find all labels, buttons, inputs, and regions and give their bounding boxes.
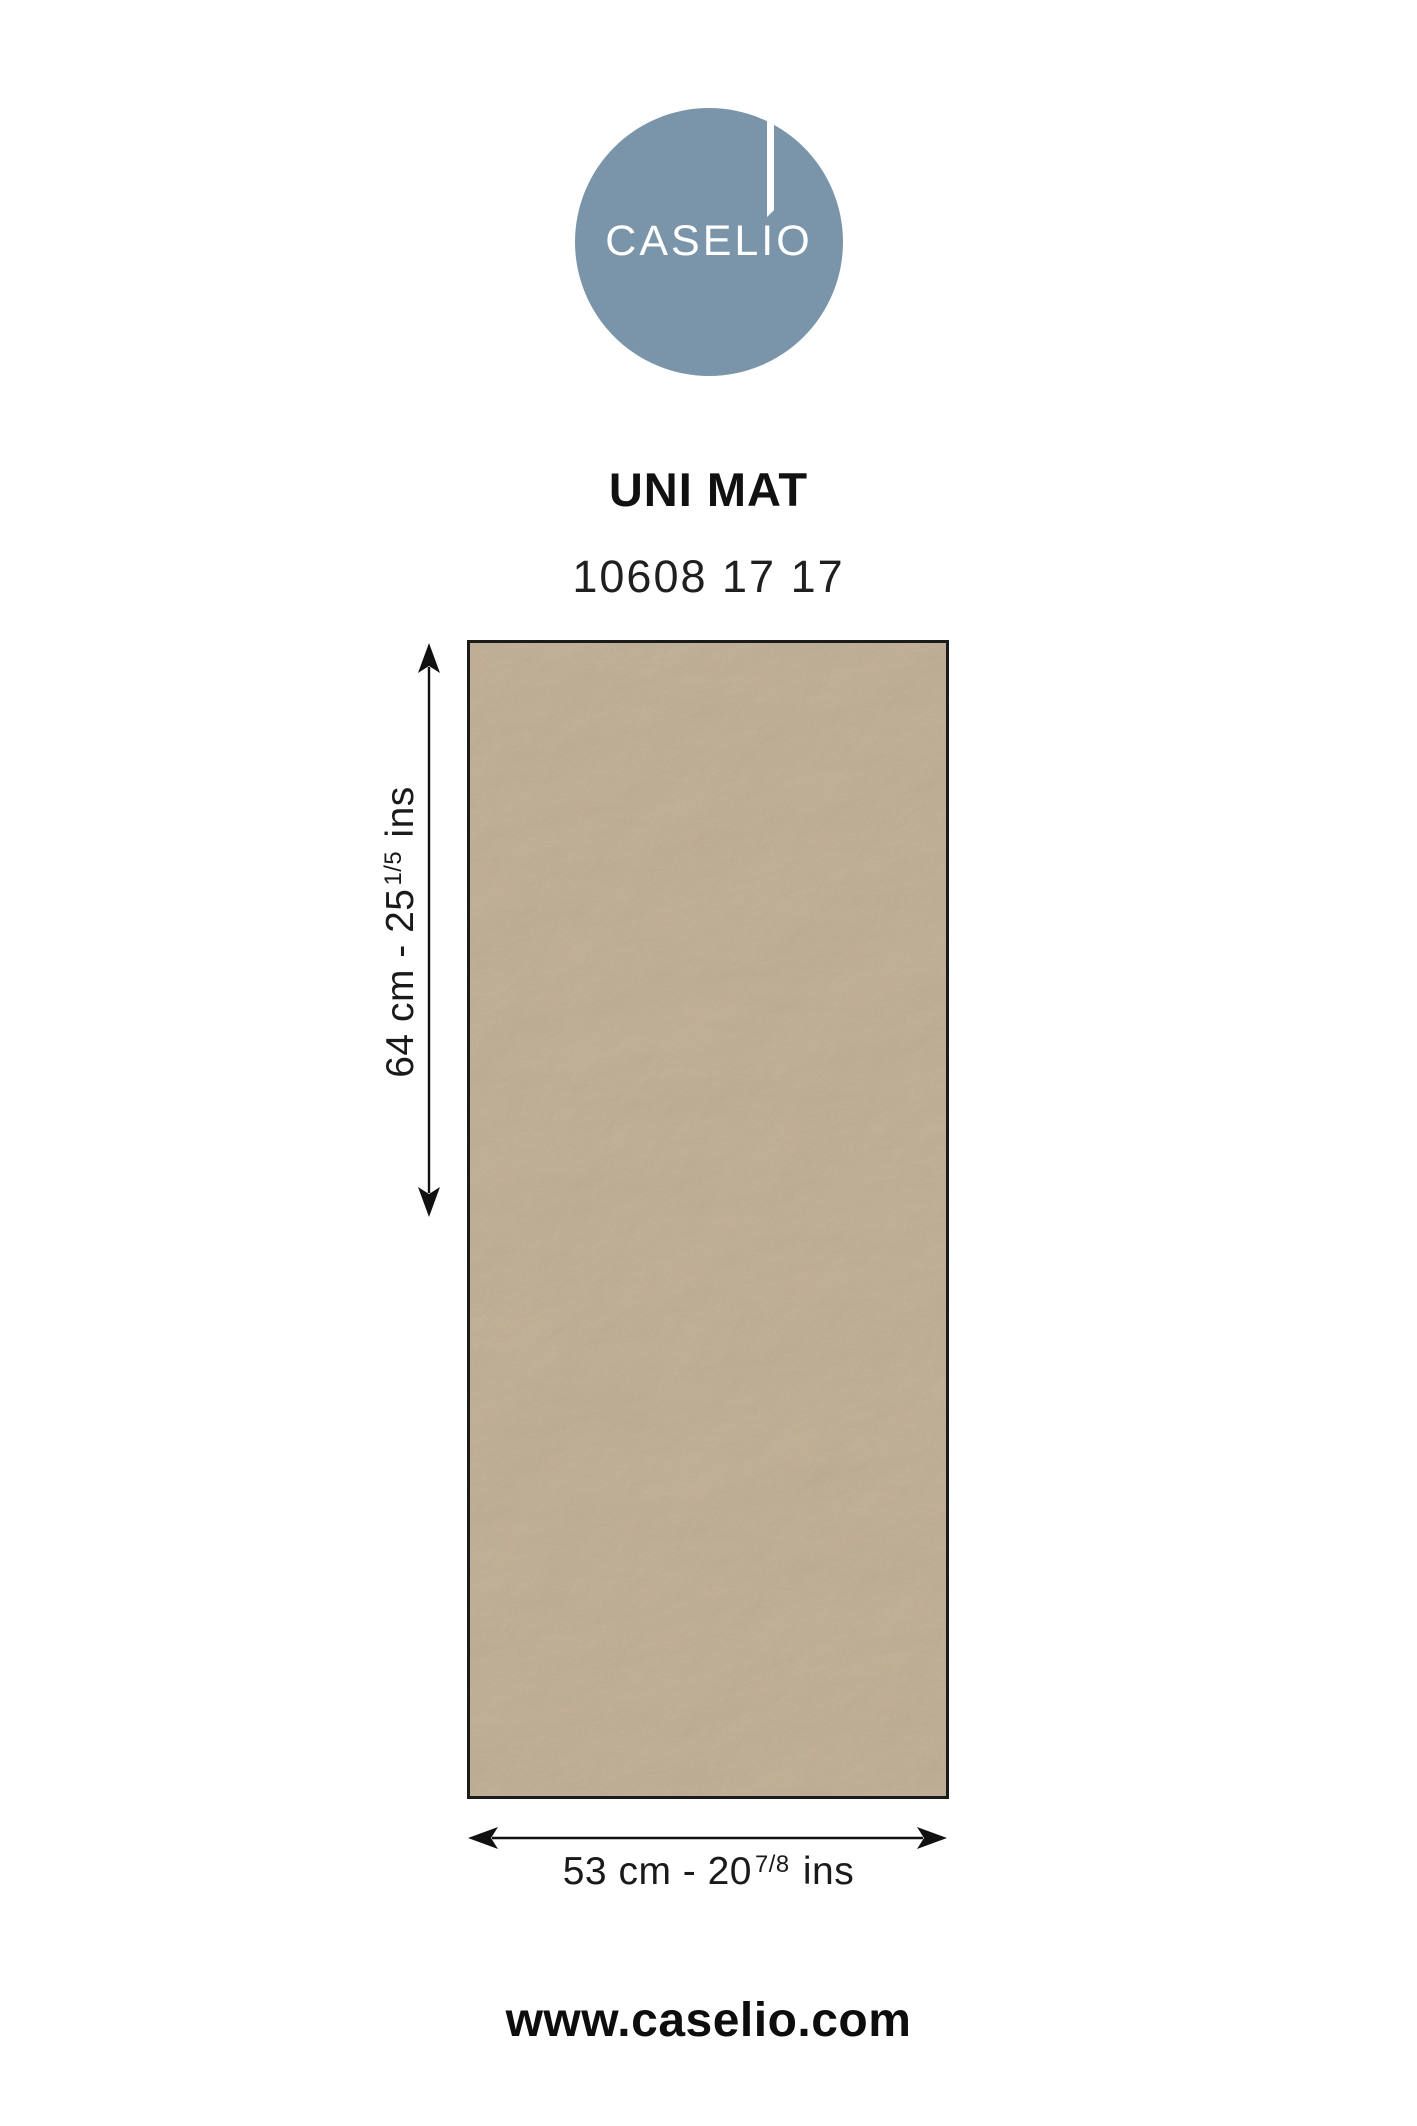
logo-wordmark-right: O [776,217,812,265]
width-dimension-label: 53 cm - 207/8 ins [0,1850,1417,1894]
width-fraction: 7/8 [755,1851,790,1878]
swatch-texture-grain [470,643,946,1796]
website-url: www.caselio.com [0,1993,1417,2048]
logo-wordmark: CASELIO [575,218,843,265]
brand-logo: CASELIO [575,108,843,376]
product-reference: 10608 17 17 [0,551,1417,603]
height-dimension-label: 64 cm - 251/5 ins [379,786,423,1078]
collection-name: UNI MAT [0,462,1417,517]
logo-i-slit-icon [767,108,774,217]
height-fraction: 1/5 [380,851,407,886]
logo-wordmark-left: CASEL [605,217,761,265]
logo-letter-i: I [761,218,776,265]
product-sheet: CASELIO UNI MAT 10608 17 17 [0,0,1417,2126]
width-dimension-arrow [468,1826,947,1850]
logo-letter-i-glyph: I [761,217,776,265]
wallpaper-swatch-image [467,640,949,1799]
